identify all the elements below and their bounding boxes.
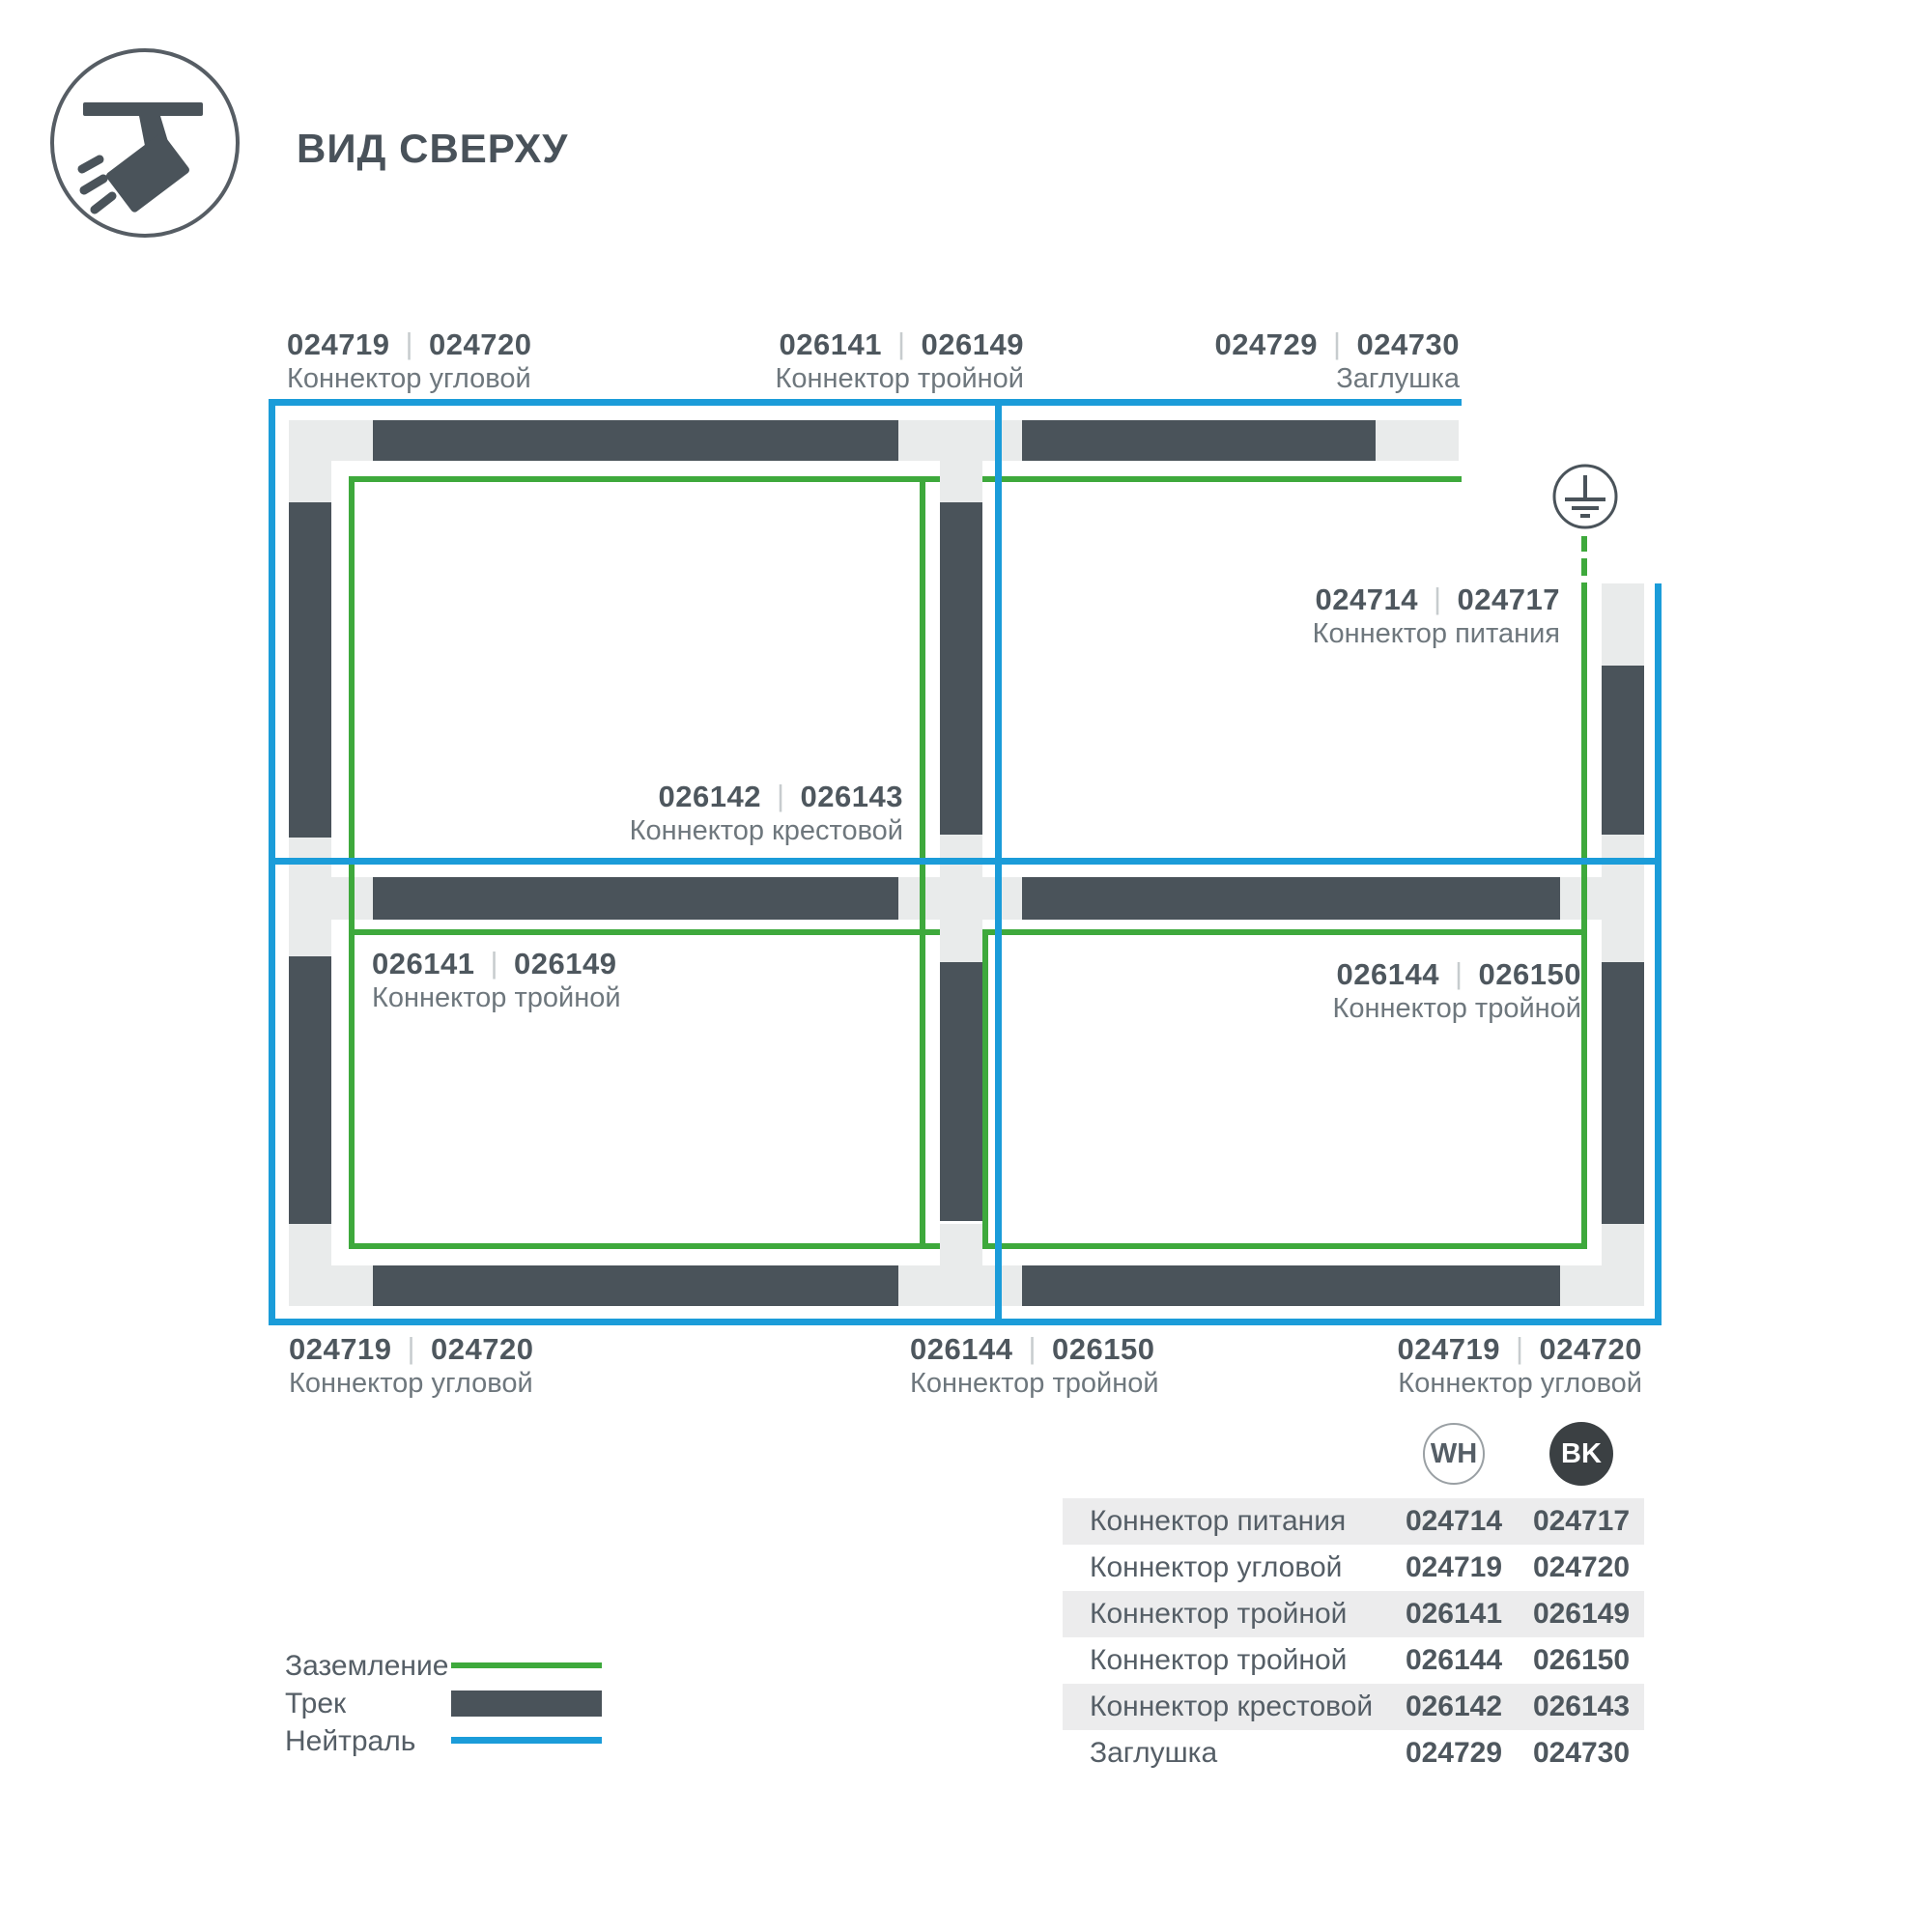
label-t-connector-middle-left: 026141|026149 Коннектор тройной [372, 946, 621, 1015]
t-connector-middle-left [289, 838, 331, 956]
code-separator: | [1434, 582, 1442, 615]
code-separator: | [490, 946, 498, 980]
ground-line-dashed [1581, 558, 1587, 576]
neutral-line-center [995, 402, 1002, 1321]
code-wh: 026144 [1381, 1644, 1526, 1677]
table-row: Коннектор тройной 026144 026150 [1063, 1637, 1644, 1684]
code-bk: 024717 [1509, 1505, 1654, 1538]
label-corner-connector-top-left: 024719|024720 Коннектор угловой [287, 327, 531, 396]
code-separator: | [1333, 327, 1342, 360]
code-wh: 026142 [1381, 1690, 1526, 1723]
t-connector-bottom [940, 1224, 982, 1265]
label-end-cap: 024729|024730 Заглушка [1215, 327, 1460, 396]
code-separator: | [897, 327, 906, 360]
part-codes: 026142|026143 [630, 779, 903, 814]
part-name: Коннектор питания [1090, 1505, 1346, 1538]
neutral-line-bottom [269, 1319, 1662, 1325]
part-name: Коннектор угловой [287, 362, 531, 396]
track-segment-left-upper [289, 502, 331, 838]
table-row: Заглушка 024729 024730 [1063, 1730, 1644, 1776]
page-title: ВИД СВЕРХУ [297, 126, 568, 172]
cross-connector [940, 835, 982, 962]
table-row: Коннектор тройной 026141 026149 [1063, 1591, 1644, 1637]
code-separator: | [1455, 956, 1463, 990]
part-name: Коннектор тройной [775, 362, 1024, 396]
t-connector-top [940, 461, 982, 502]
corner-connector-bottom-left [289, 1224, 331, 1265]
corner-connector-top-left [289, 420, 373, 461]
label-t-connector-middle-right: 026144|026150 Коннектор тройной [1332, 956, 1581, 1026]
part-codes: 024729|024730 [1215, 327, 1460, 362]
label-cross-connector: 026142|026143 Коннектор крестовой [630, 779, 903, 848]
part-codes: 026144|026150 [1332, 956, 1581, 992]
part-name: Коннектор тройной [1090, 1644, 1347, 1677]
part-name: Коннектор угловой [289, 1367, 533, 1401]
corner-connector-bottom-right [1560, 1265, 1644, 1306]
code-wh: 026141 [1381, 1598, 1526, 1631]
code-wh: 024719 [1381, 1551, 1526, 1584]
part-name: Коннектор угловой [1090, 1551, 1342, 1584]
corner-connector-bottom-right [1602, 1224, 1644, 1265]
part-name: Коннектор тройной [1332, 992, 1581, 1026]
track-spotlight-icon [48, 46, 241, 240]
part-name: Коннектор тройной [372, 981, 621, 1015]
part-name: Коннектор угловой [1398, 1367, 1642, 1401]
track-segment-bottom-left [373, 1265, 898, 1306]
track-segment-center-lower [940, 962, 982, 1221]
table-row: Коннектор крестовой 026142 026143 [1063, 1684, 1644, 1730]
track-segment-left-lower [289, 956, 331, 1224]
track-segment-bottom-right [1022, 1265, 1560, 1306]
label-t-connector-bottom: 026144|026150 Коннектор тройной [910, 1331, 1159, 1401]
part-name: Коннектор тройной [910, 1367, 1159, 1401]
code-bk: 024720 [1509, 1551, 1654, 1584]
neutral-line-right [1655, 583, 1662, 1325]
track-segment-right-lower [1602, 962, 1644, 1224]
table-row: Коннектор питания 024714 024717 [1063, 1498, 1644, 1545]
code-separator: | [407, 1331, 415, 1365]
code-wh: 024729 [1381, 1737, 1526, 1770]
power-connector [1602, 583, 1644, 666]
t-connector-middle-right [1602, 835, 1644, 962]
code-bk: 026150 [1509, 1644, 1654, 1677]
part-codes: 024719|024720 [1398, 1331, 1642, 1367]
label-power-connector: 024714|024717 Коннектор питания [1313, 582, 1560, 651]
ground-line-swatch [451, 1662, 602, 1668]
part-name: Заглушка [1090, 1737, 1217, 1770]
color-badge-black: BK [1549, 1422, 1613, 1486]
table-row: Коннектор угловой 024719 024720 [1063, 1545, 1644, 1591]
end-cap [1376, 420, 1459, 461]
code-separator: | [405, 327, 413, 360]
neutral-line-top [269, 399, 1462, 406]
code-bk: 024730 [1509, 1737, 1654, 1770]
code-separator: | [1516, 1331, 1524, 1365]
earth-ground-icon [1546, 456, 1625, 537]
ground-line-right [1581, 582, 1587, 1249]
part-name: Коннектор крестовой [1090, 1690, 1373, 1723]
track-bar-swatch [451, 1690, 602, 1717]
legend-label-ground: Заземление [285, 1651, 448, 1682]
track-segment-top-right [1022, 420, 1376, 461]
part-name: Коннектор тройной [1090, 1598, 1347, 1631]
track-segment-center-upper [940, 502, 982, 835]
code-separator: | [777, 779, 785, 812]
code-separator: | [1028, 1331, 1037, 1365]
part-name: Коннектор крестовой [630, 814, 903, 848]
part-name: Заглушка [1215, 362, 1460, 396]
part-codes: 024719|024720 [287, 327, 531, 362]
legend-label-track: Трек [285, 1689, 346, 1719]
label-t-connector-top: 026141|026149 Коннектор тройной [775, 327, 1024, 396]
code-bk: 026143 [1509, 1690, 1654, 1723]
neutral-line-middle [271, 858, 1659, 865]
track-segment-right-upper [1602, 666, 1644, 835]
part-codes: 024714|024717 [1313, 582, 1560, 617]
t-connector-bottom [898, 1265, 1022, 1306]
code-wh: 024714 [1381, 1505, 1526, 1538]
label-corner-connector-bottom-left: 024719|024720 Коннектор угловой [289, 1331, 533, 1401]
corner-connector-top-left [289, 461, 331, 502]
ground-line-dashed [1581, 536, 1587, 552]
label-corner-connector-bottom-right: 024719|024720 Коннектор угловой [1398, 1331, 1642, 1401]
t-connector-top [898, 420, 1022, 461]
track-segment-middle-left [373, 877, 898, 920]
ground-line-top [349, 476, 1462, 482]
neutral-line-swatch [451, 1737, 602, 1744]
track-segment-middle-right [1022, 877, 1560, 920]
part-codes: 026141|026149 [775, 327, 1024, 362]
part-codes: 026144|026150 [910, 1331, 1159, 1367]
part-name: Коннектор питания [1313, 617, 1560, 651]
legend-label-neutral: Нейтраль [285, 1726, 415, 1757]
corner-connector-bottom-left [289, 1265, 373, 1306]
track-segment-top-left [373, 420, 898, 461]
part-codes: 024719|024720 [289, 1331, 533, 1367]
code-bk: 026149 [1509, 1598, 1654, 1631]
part-codes: 026141|026149 [372, 946, 621, 981]
color-badge-white: WH [1423, 1423, 1485, 1485]
ground-line-center-right [982, 929, 988, 1249]
